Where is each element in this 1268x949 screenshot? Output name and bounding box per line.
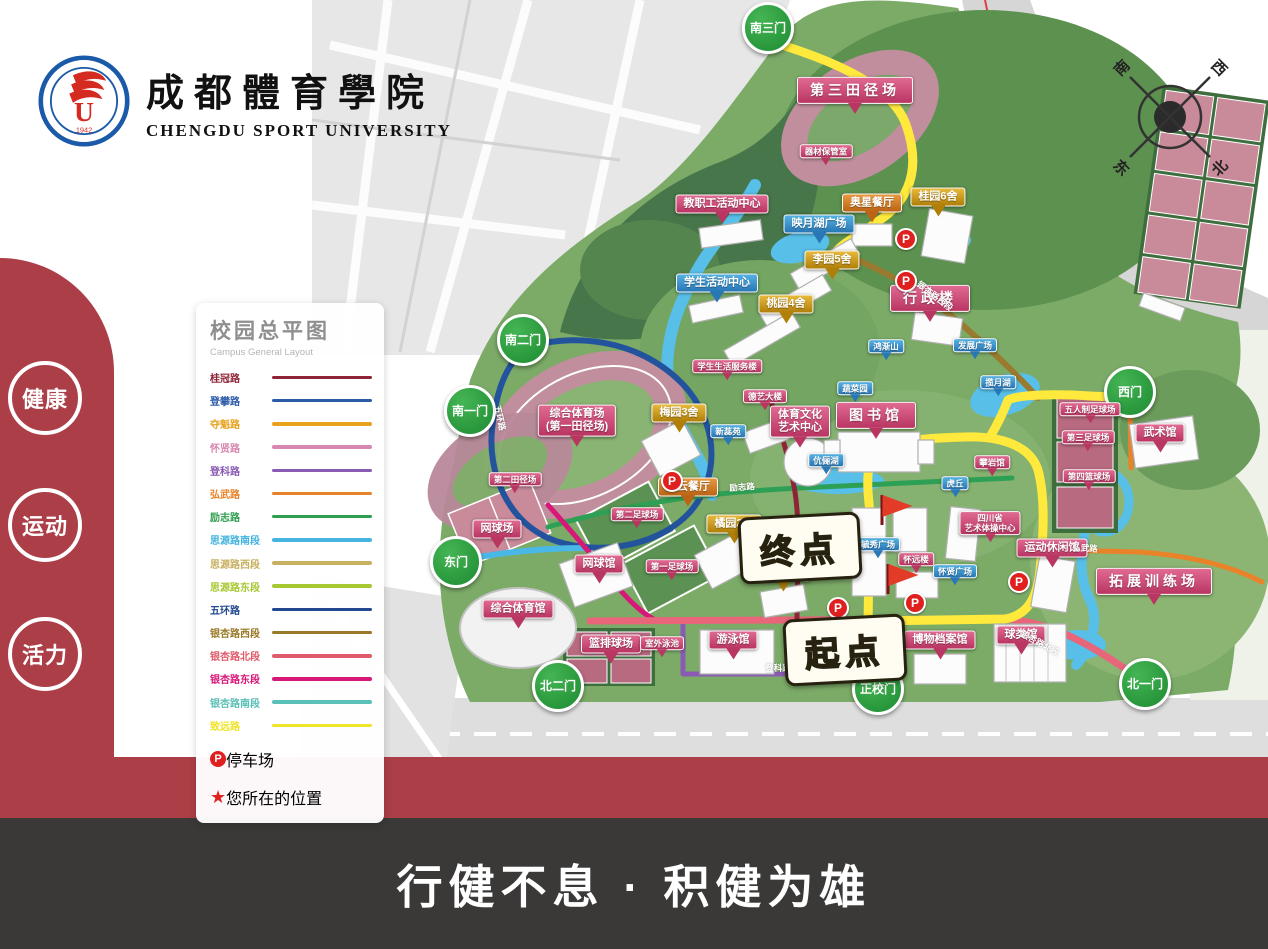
map-label-arrow [722, 372, 732, 380]
map-label-arrow [881, 352, 891, 360]
parking-icon: P [895, 270, 917, 292]
map-label-arrow [1147, 594, 1161, 605]
compass-rose: 南 西 东 北 [1108, 55, 1233, 180]
legend-road-name: 弘武路 [210, 486, 272, 501]
map-label-text: 德艺大楼 [743, 389, 787, 403]
parking-icon: P [661, 470, 683, 492]
map-label-arrow [970, 351, 980, 359]
road-name-弘武路: 弘武路 [1072, 541, 1098, 555]
map-label-text: 第二足球场 [611, 507, 664, 521]
map-label-新蕊苑: 新蕊苑 [710, 424, 746, 445]
legend-road-row: 五环路 [210, 602, 372, 617]
legend-road-swatch [272, 376, 372, 380]
legend-road-swatch [272, 492, 372, 496]
map-label-arrow [933, 649, 947, 660]
legend-road-name: 思源路南段 [210, 532, 272, 547]
legend-road-row: 银杏路南段 [210, 695, 372, 710]
map-label-第二田径场: 第二田径场 [489, 472, 542, 493]
map-label-攀岩馆: 攀岩馆 [974, 455, 1010, 476]
map-label-arrow [950, 489, 960, 497]
map-label-arrow [510, 485, 520, 493]
map-label-text: 体育文化艺术中心 [770, 406, 830, 438]
map-label-奥星餐厅: 奥星餐厅 [842, 193, 902, 222]
map-label-第四篮球场: 第四篮球场 [1063, 469, 1116, 490]
legend-title: 校园总平图 [210, 315, 372, 345]
map-label-arrow [1084, 482, 1094, 490]
legend-road-swatch [272, 631, 372, 635]
map-label-arrow [985, 535, 995, 543]
legend-road-swatch [272, 422, 372, 426]
map-label-拓展训练场: 拓展训练场 [1096, 568, 1212, 605]
legend-symbol-label: 停车场 [226, 747, 274, 771]
map-label-第一足球场: 第一足球场 [646, 559, 699, 580]
map-label-arrow [873, 550, 883, 558]
logo-year: 1942 [76, 125, 92, 134]
map-label-arrow [710, 292, 724, 303]
legend-road-name: 银杏路西段 [210, 625, 272, 640]
map-label-arrow [821, 157, 831, 165]
legend-road-swatch [272, 677, 372, 681]
map-label-arrow [1045, 557, 1059, 568]
map-label-第二足球场: 第二足球场 [611, 507, 664, 528]
map-label-arrow [950, 577, 960, 585]
legend-road-row: 银杏路东段 [210, 671, 372, 686]
map-label-text: 第二田径场 [489, 472, 542, 486]
legend-road-row: 思源路东段 [210, 579, 372, 594]
map-label-图书馆: 图书馆 [836, 402, 916, 439]
legend-symbol-row: ★您所在的位置 [210, 785, 372, 809]
value-badge-1: 健康 [8, 361, 82, 435]
map-label-arrow [825, 269, 839, 280]
route-flag-icon [881, 495, 884, 525]
gate-北一门: 北一门 [1119, 658, 1171, 710]
map-label-text: 游泳馆 [709, 630, 758, 649]
star-icon: ★ [210, 790, 226, 804]
map-label-arrow [715, 213, 729, 224]
map-label-text: 奥星餐厅 [842, 193, 902, 212]
map-label-arrow [723, 437, 733, 445]
map-label-text: 新蕊苑 [710, 424, 746, 438]
map-label-text: 室外泳池 [640, 636, 684, 650]
map-label-博物档案馆: 博物档案馆 [905, 630, 976, 659]
map-label-arrow [1014, 644, 1028, 655]
map-label-arrow [865, 212, 879, 223]
legend-road-swatch [272, 399, 372, 403]
gate-南一门: 南一门 [444, 385, 496, 437]
parking-icon: P [904, 592, 926, 614]
map-label-text: 拓展训练场 [1096, 568, 1212, 595]
legend-road-swatch [272, 608, 372, 612]
map-label-arrow [632, 520, 642, 528]
legend-road-swatch [272, 515, 372, 519]
map-label-text: 李园5舍 [804, 250, 859, 269]
legend-road-swatch [272, 724, 372, 728]
map-label-text: 发展广场 [953, 338, 997, 352]
map-label-arrow [869, 428, 883, 439]
legend-road-name: 五环路 [210, 602, 272, 617]
university-name-en: CHENGDU SPORT UNIVERSITY [146, 121, 452, 141]
map-label-text: 梅园3舍 [651, 403, 706, 422]
legend-road-row: 夺魁路 [210, 416, 372, 431]
map-label-arrow [681, 496, 695, 507]
map-label-第三足球场: 第三足球场 [1062, 430, 1115, 451]
value-badge-3: 活力 [8, 617, 82, 691]
flag-cloth [889, 564, 919, 586]
map-label-桃园4舍: 桃园4舍 [758, 294, 813, 323]
map-label-arrow [570, 436, 584, 447]
parking-icon: P [210, 751, 226, 767]
legend-road-name: 思源路西段 [210, 556, 272, 571]
map-label-text: 第三田径场 [797, 77, 913, 104]
route-point-终点: 终点 [737, 511, 862, 584]
map-label-arrow [987, 468, 997, 476]
map-label-text: 综合体育馆 [483, 599, 554, 618]
map-label-text: 第三足球场 [1062, 430, 1115, 444]
map-label-arrow [667, 572, 677, 580]
legend-road-swatch [272, 561, 372, 565]
university-header: U 1942 成都體育學院 CHENGDU SPORT UNIVERSITY [38, 55, 452, 147]
map-label-arrow [1085, 415, 1095, 423]
map-label-篮排球场: 篮排球场 [581, 634, 641, 663]
map-label-综合体育场: 综合体育场(第一田径场) [538, 405, 616, 447]
map-label-毓秀广场: 毓秀广场 [856, 537, 900, 558]
map-label-text: 蔬菜园 [837, 381, 873, 395]
map-label-arrow [993, 388, 1003, 396]
legend-road-swatch [272, 654, 372, 658]
map-label-虎丘: 虎丘 [941, 476, 968, 497]
legend-road-row: 桂冠路 [210, 370, 372, 385]
legend-road-swatch [272, 445, 372, 449]
map-label-text: 第四篮球场 [1063, 469, 1116, 483]
map-label-揽月湖: 揽月湖 [980, 375, 1016, 396]
svg-text:U: U [74, 96, 94, 127]
map-label-室外泳池: 室外泳池 [640, 636, 684, 657]
university-logo-icon: U 1942 [38, 55, 130, 147]
map-label-arrow [672, 422, 686, 433]
map-label-text: 桃园4舍 [758, 294, 813, 313]
legend-road-row: 励志路 [210, 509, 372, 524]
map-legend: 校园总平图 Campus General Layout 桂冠路登攀路夺魁路怀贤路… [196, 303, 384, 823]
map-label-鸿渐山: 鸿渐山 [868, 339, 904, 360]
legend-road-name: 励志路 [210, 509, 272, 524]
map-label-arrow [592, 573, 606, 584]
parking-icon: P [895, 228, 917, 250]
value-badge-2: 运动 [8, 488, 82, 562]
map-label-text: 网球馆 [575, 554, 624, 573]
map-label-网球馆: 网球馆 [575, 554, 624, 583]
map-label-网球场: 网球场 [473, 519, 522, 548]
university-name-zh: 成都體育學院 [146, 62, 452, 117]
map-label-arrow [604, 653, 618, 664]
map-label-text: 学生生活服务楼 [692, 359, 762, 373]
legend-symbol-row: P停车场 [210, 747, 372, 771]
map-label-text: 武术馆 [1136, 423, 1185, 442]
map-label-四川省: 四川省艺术体操中心 [959, 511, 1020, 542]
road-name-五环路: 五环路 [491, 404, 508, 431]
bottom-accent-strip [0, 757, 1268, 818]
map-label-arrow [490, 538, 504, 549]
map-label-text: 四川省艺术体操中心 [959, 511, 1020, 535]
map-label-怀贤广场: 怀贤广场 [933, 564, 977, 585]
map-label-text: 毓秀广场 [856, 537, 900, 551]
map-label-学生生活服务楼: 学生生活服务楼 [692, 359, 762, 380]
legend-road-swatch [272, 538, 372, 542]
map-label-综合体育馆: 综合体育馆 [483, 599, 554, 628]
map-label-text: 第一足球场 [646, 559, 699, 573]
legend-road-row: 弘武路 [210, 486, 372, 501]
map-label-text: 综合体育场(第一田径场) [538, 405, 616, 437]
legend-road-name: 银杏路东段 [210, 671, 272, 686]
map-label-arrow [726, 649, 740, 660]
map-label-arrow [657, 649, 667, 657]
map-label-arrow [848, 103, 862, 114]
parking-icon: P [1008, 571, 1030, 593]
legend-road-name: 银杏路南段 [210, 695, 272, 710]
legend-road-name: 银杏路北段 [210, 648, 272, 663]
map-label-text: 器材保管室 [800, 144, 853, 158]
map-label-arrow [793, 437, 807, 448]
map-label-学生活动中心: 学生活动中心 [676, 273, 758, 302]
map-label-arrow [779, 313, 793, 324]
legend-road-row: 登科路 [210, 463, 372, 478]
legend-road-name: 怀贤路 [210, 440, 272, 455]
legend-road-row: 思源路南段 [210, 532, 372, 547]
legend-road-row: 银杏路北段 [210, 648, 372, 663]
map-label-text: 教职工活动中心 [676, 194, 769, 213]
map-label-梅园3舍: 梅园3舍 [651, 403, 706, 432]
gate-南二门: 南二门 [497, 314, 549, 366]
legend-road-name: 思源路东段 [210, 579, 272, 594]
map-label-text: 博物档案馆 [905, 630, 976, 649]
map-label-李园5舍: 李园5舍 [804, 250, 859, 279]
map-label-arrow [821, 466, 831, 474]
legend-road-row: 致远路 [210, 718, 372, 733]
map-label-五人制足球场: 五人制足球场 [1059, 402, 1120, 423]
legend-symbol-list: P停车场★您所在的位置 [210, 747, 372, 809]
map-label-发展广场: 发展广场 [953, 338, 997, 359]
legend-road-name: 登攀路 [210, 393, 272, 408]
map-label-arrow [923, 311, 937, 322]
legend-road-swatch [272, 584, 372, 588]
map-label-arrow [511, 618, 525, 629]
map-label-桂园6舍: 桂园6舍 [910, 187, 965, 216]
map-label-蔬菜园: 蔬菜园 [837, 381, 873, 402]
legend-road-swatch [272, 700, 372, 704]
legend-road-row: 登攀路 [210, 393, 372, 408]
map-label-text: 图书馆 [836, 402, 916, 429]
legend-road-swatch [272, 469, 372, 473]
map-label-text: 鸿渐山 [868, 339, 904, 353]
map-label-text: 揽月湖 [980, 375, 1016, 389]
map-label-第三田径场: 第三田径场 [797, 77, 913, 114]
map-label-教职工活动中心: 教职工活动中心 [676, 194, 769, 223]
gate-北二门: 北二门 [532, 660, 584, 712]
map-label-text: 网球场 [473, 519, 522, 538]
legend-road-name: 致远路 [210, 718, 272, 733]
route-point-起点: 起点 [782, 613, 907, 686]
map-label-arrow [812, 233, 826, 244]
map-label-text: 桂园6舍 [910, 187, 965, 206]
legend-road-row: 怀贤路 [210, 440, 372, 455]
legend-road-name: 夺魁路 [210, 416, 272, 431]
map-label-体育文化: 体育文化艺术中心 [770, 406, 830, 448]
map-label-arrow [760, 402, 770, 410]
map-label-游泳馆: 游泳馆 [709, 630, 758, 659]
map-label-arrow [1083, 443, 1093, 451]
legend-symbol-label: 您所在的位置 [226, 785, 322, 809]
map-label-text: 虎丘 [941, 476, 968, 490]
map-label-武术馆: 武术馆 [1136, 423, 1185, 452]
legend-road-name: 桂冠路 [210, 370, 272, 385]
legend-road-row: 银杏路西段 [210, 625, 372, 640]
map-label-伉俪湖: 伉俪湖 [808, 453, 844, 474]
gate-南三门: 南三门 [742, 2, 794, 54]
road-name-励志路: 励志路 [729, 480, 755, 494]
flag-cloth [883, 495, 913, 517]
route-flag-icon [887, 564, 890, 594]
map-label-器材保管室: 器材保管室 [800, 144, 853, 165]
map-label-text: 学生活动中心 [676, 273, 758, 292]
map-label-text: 怀贤广场 [933, 564, 977, 578]
legend-road-name: 登科路 [210, 463, 272, 478]
map-label-text: 攀岩馆 [974, 455, 1010, 469]
map-label-text: 五人制足球场 [1059, 402, 1120, 416]
legend-road-row: 思源路西段 [210, 556, 372, 571]
legend-subtitle: Campus General Layout [210, 347, 372, 358]
map-label-text: 篮排球场 [581, 634, 641, 653]
footer-banner: 行健不息 · 积健为雄 [0, 818, 1268, 949]
map-label-arrow [931, 206, 945, 217]
map-label-arrow [1153, 442, 1167, 453]
legend-road-list: 桂冠路登攀路夺魁路怀贤路登科路弘武路励志路思源路南段思源路西段思源路东段五环路银… [210, 370, 372, 733]
map-label-text: 伉俪湖 [808, 453, 844, 467]
slogan-text: 行健不息 · 积健为雄 [397, 851, 872, 917]
